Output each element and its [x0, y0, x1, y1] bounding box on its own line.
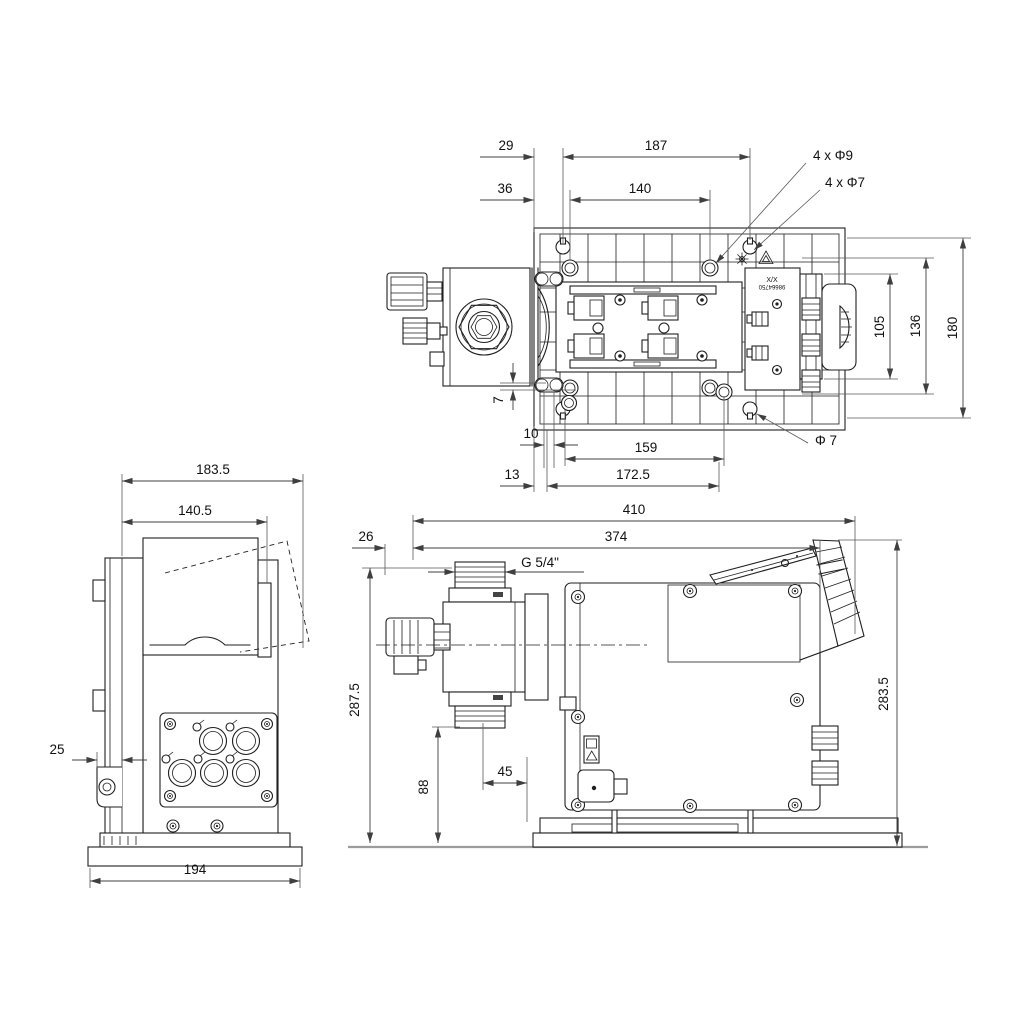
cable-gland-block [802, 298, 820, 392]
mounting-bracket [97, 767, 122, 807]
connection-panel [160, 713, 277, 807]
rail-slot-bottom [570, 360, 716, 368]
dim-194: 194 [184, 862, 207, 877]
dim-29: 29 [498, 138, 513, 153]
dim-140-5: 140.5 [178, 503, 212, 518]
cable-gland-head [386, 618, 450, 674]
housing-side [560, 583, 838, 813]
suction-thread [455, 706, 505, 728]
stroke-knob-small [403, 318, 447, 344]
front-view: 183.5 140.5 25 194 [49, 462, 309, 888]
slide-rail-assembly [556, 282, 742, 372]
dim-26: 26 [358, 529, 373, 544]
dim-136: 136 [908, 315, 923, 338]
side-view: 410 374 26 G 5/4" 287.5 88 45 283.5 [347, 502, 928, 847]
dim-holes-phi9: 4 x Φ9 [813, 148, 853, 163]
dim-183-5: 183.5 [196, 462, 230, 477]
panel-slab [813, 540, 864, 646]
dosing-pump-dimensional-drawing: X/X 98664750 [0, 0, 1024, 1024]
dim-88: 88 [416, 779, 431, 794]
head-cylinder [443, 602, 525, 692]
valve-fitting [456, 299, 512, 355]
top-view: X/X 98664750 [387, 138, 971, 492]
panel-front-edge [710, 548, 816, 584]
dim-187: 187 [645, 138, 668, 153]
gear-star-icon [736, 253, 749, 266]
dim-283-5: 283.5 [876, 677, 891, 711]
warning-label [584, 736, 599, 763]
dim-10: 10 [523, 426, 538, 441]
dim-410: 410 [623, 502, 646, 517]
discharge-thread [455, 562, 505, 588]
mounting-clip [560, 697, 576, 710]
dim-36: 36 [497, 181, 512, 196]
dim-phi7-callout: Φ 7 [815, 433, 837, 448]
dim-25: 25 [49, 742, 64, 757]
stroke-adjustment-knob [822, 284, 856, 370]
dim-105: 105 [872, 316, 887, 339]
dim-7: 7 [491, 396, 506, 404]
rail-slot-top [570, 286, 716, 294]
dim-140: 140 [629, 181, 652, 196]
dim-159: 159 [635, 440, 658, 455]
dim-45: 45 [497, 764, 512, 779]
technical-drawing-page: X/X 98664750 [0, 0, 1024, 1024]
dim-thread-g54: G 5/4" [521, 555, 559, 570]
dim-172-5: 172.5 [616, 467, 650, 482]
dim-374: 374 [605, 529, 628, 544]
dosing-head-top [443, 268, 530, 386]
connector-tab [430, 352, 444, 366]
base-plate-side [533, 810, 902, 847]
head-flange [525, 594, 548, 700]
dim-287-5: 287.5 [347, 683, 362, 717]
dim-13: 13 [504, 467, 519, 482]
type-label-line1: X/X [766, 277, 778, 284]
type-label-line2: 98664750 [758, 283, 785, 289]
cable-gland [387, 273, 442, 310]
label-plate: X/X 98664750 [745, 268, 800, 390]
dim-holes-phi7: 4 x Φ7 [825, 175, 865, 190]
dim-180: 180 [945, 317, 960, 340]
control-cover [143, 538, 271, 657]
